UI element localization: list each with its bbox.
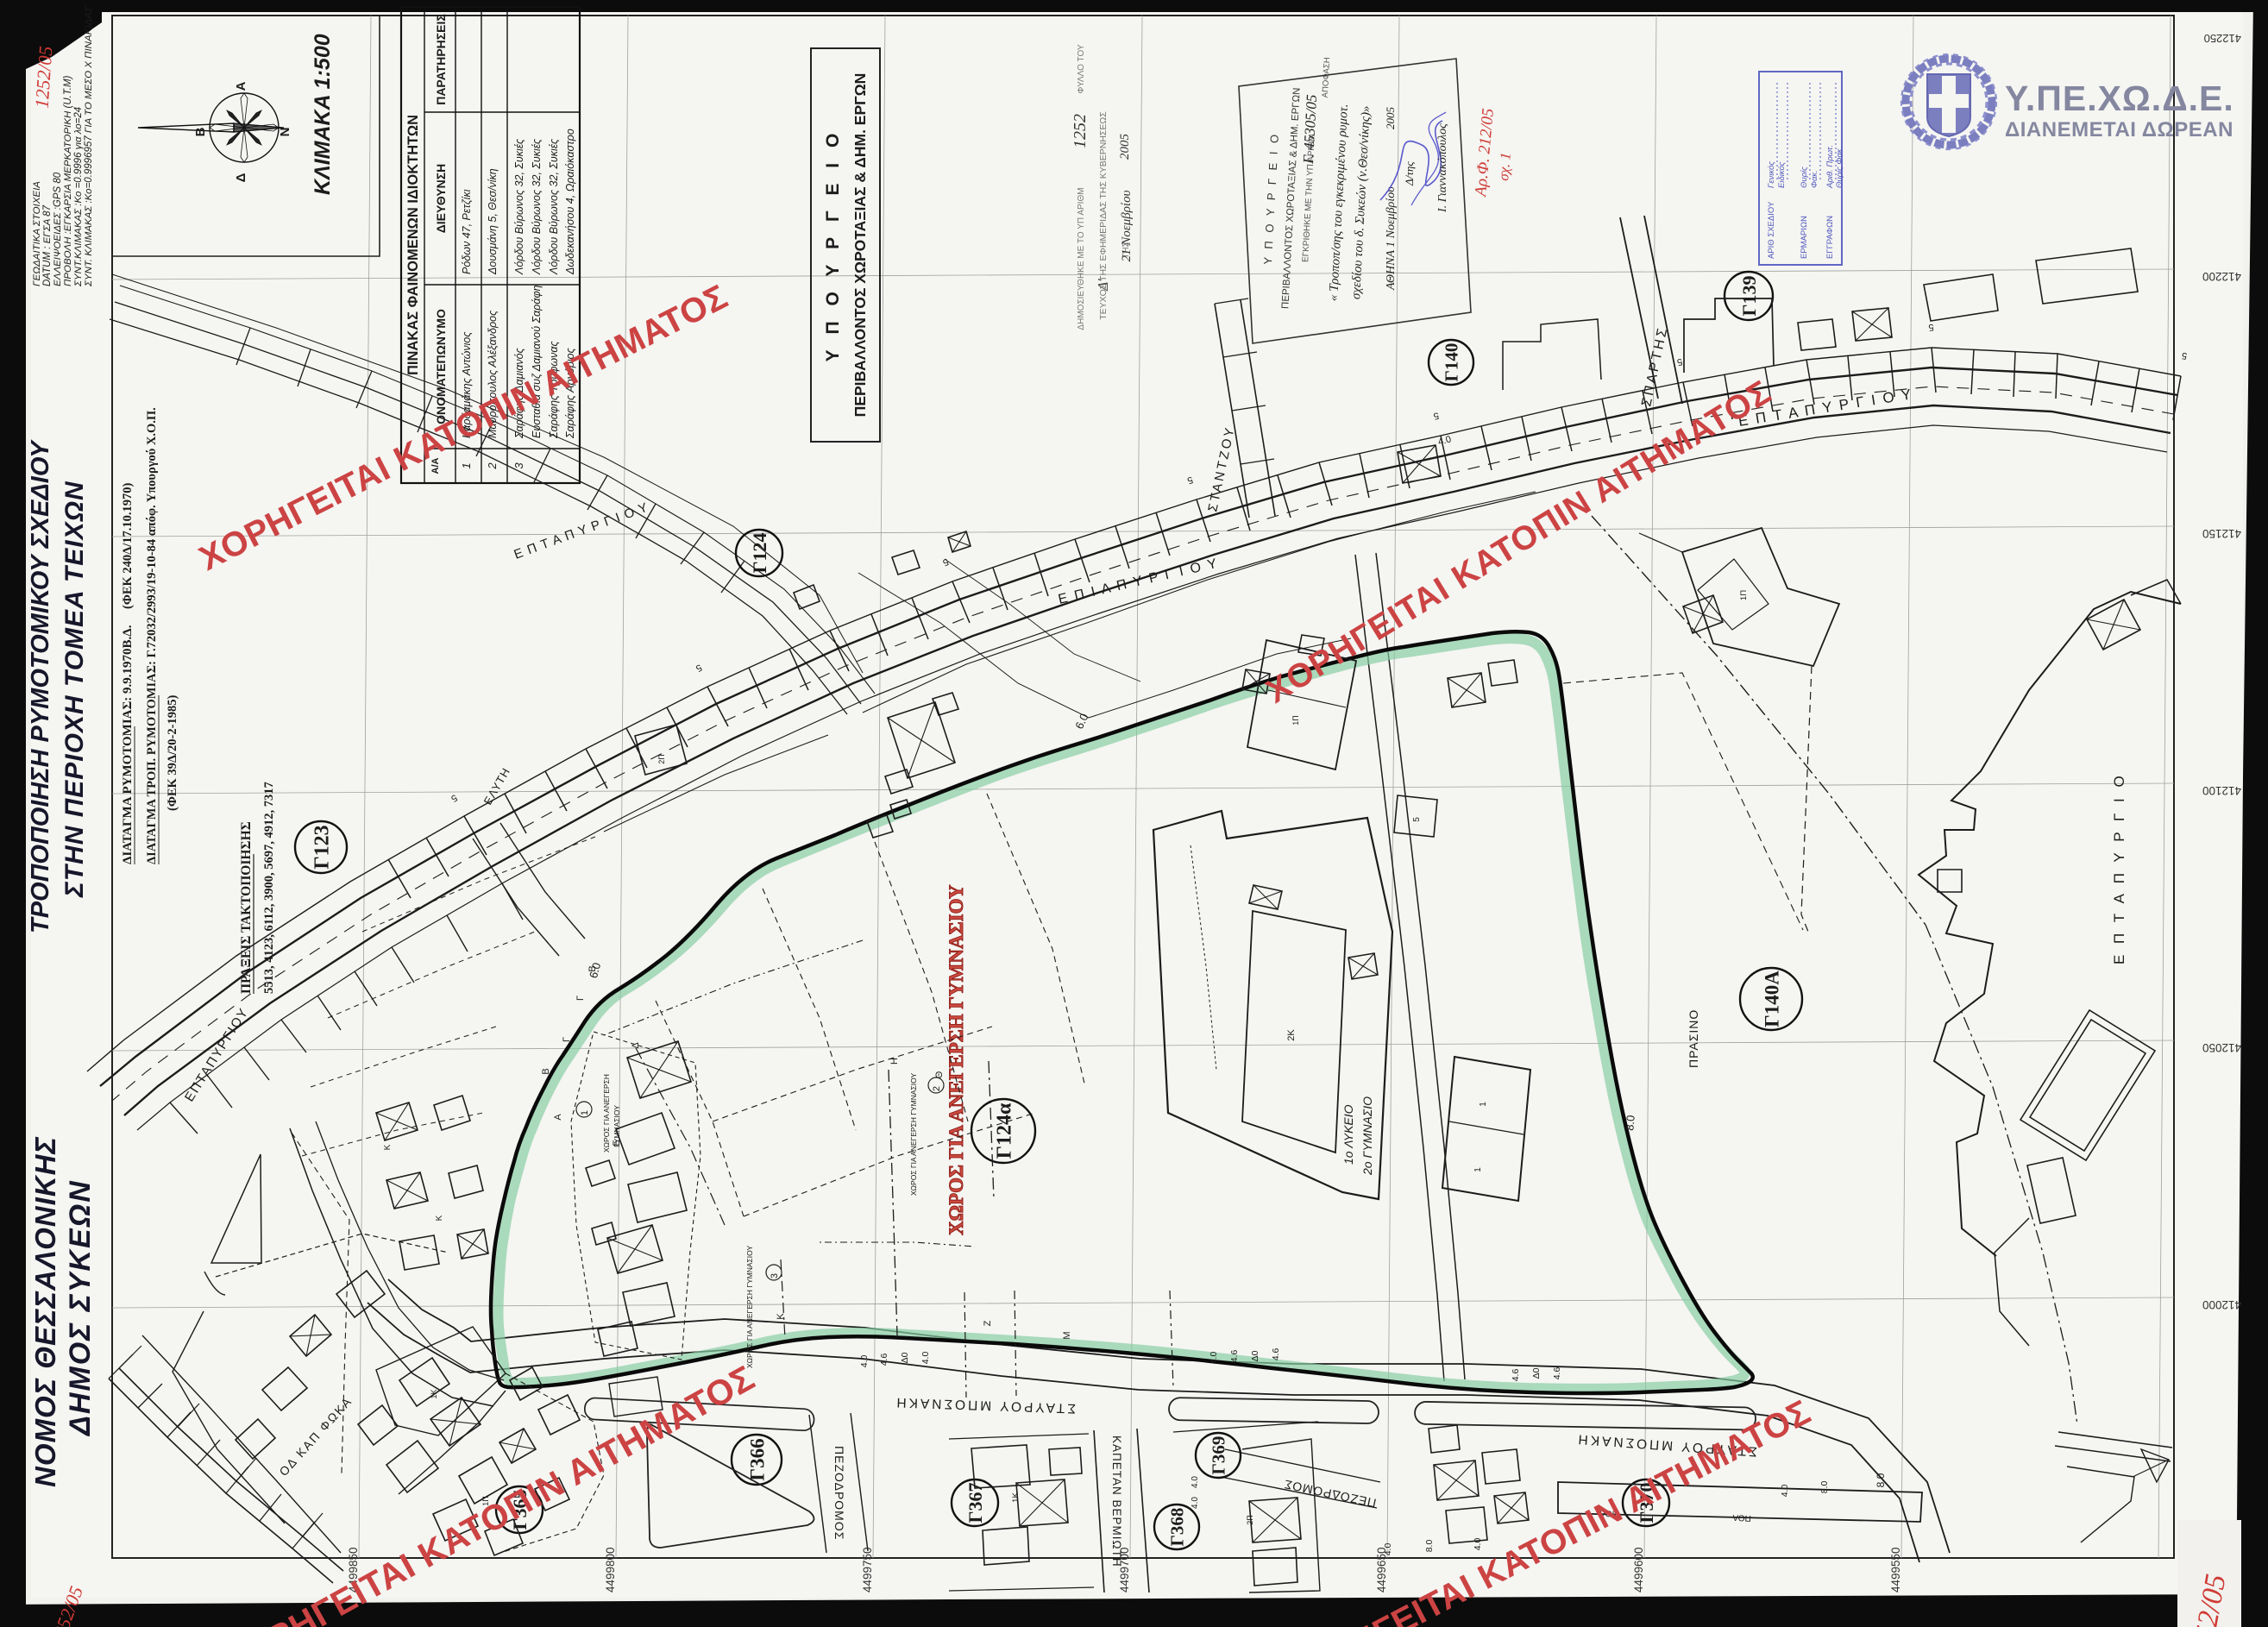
- svg-text:ΤΡΟΠΟΠΟΙΗΣΗ ΡΥΜΟΤΟΜΙΚΟΥ ΣΧΕΔ: ΤΡΟΠΟΠΟΙΗΣΗ ΡΥΜΟΤΟΜΙΚΟΥ ΣΧΕΔΙΟΥ: [27, 439, 54, 933]
- svg-text:Λόρδου Βύρωνος 32, Συκιές: Λόρδου Βύρωνος 32, Συκιές: [513, 138, 525, 275]
- svg-text:ΑΡΙΘ ΣΧΕΔΙΟΥ: ΑΡΙΘ ΣΧΕΔΙΟΥ: [1767, 201, 1776, 259]
- svg-text:ΠΡΟΒΟΛΗ :ΕΓΚΑΡΣΙΑ ΜΕΡ: ΠΡΟΒΟΛΗ :ΕΓΚΑΡΣΙΑ ΜΕΡΚΑΤΟΡΙΚΗ (U.T.M): [63, 75, 73, 286]
- svg-text:4.6: 4.6: [1229, 1350, 1240, 1363]
- svg-text:σχ. 1: σχ. 1: [1495, 152, 1514, 181]
- svg-text:ΧΩΡΟΣ ΓΙΑ ΑΝΕΓΕΡΣΗ ΓΥΜΝΑΣΙΟΥ: ΧΩΡΟΣ ΓΙΑ ΑΝΕΓΕΡΣΗ ΓΥΜΝΑΣΙΟΥ: [946, 884, 967, 1235]
- svg-text:Δ0: Δ0: [900, 1352, 910, 1363]
- svg-text:Μ: Μ: [1062, 1331, 1072, 1339]
- svg-text:4.0: 4.0: [920, 1352, 931, 1365]
- svg-text:3: 3: [512, 462, 525, 469]
- svg-text:1: 1: [1473, 1167, 1483, 1172]
- svg-text:ΠΕΡΙΒΑΛΛΟΝΤΟΣ ΧΩΡΟΤΑΞΙΑΣ & ΔΗΜ: ΠΕΡΙΒΑΛΛΟΝΤΟΣ ΧΩΡΟΤΑΞΙΑΣ & ΔΗΜ. ΕΡΓΩΝ: [851, 73, 869, 418]
- svg-text:Δ0: Δ0: [1531, 1367, 1542, 1379]
- svg-text:Ζ: Ζ: [983, 1320, 993, 1326]
- svg-text:Δωδεκανήσου 4, Ωραιόκαστρο: Δωδεκανήσου 4, Ωραιόκαστρο: [564, 129, 576, 275]
- svg-text:4.6: 4.6: [879, 1354, 889, 1366]
- svg-text:1: 1: [1479, 1102, 1488, 1107]
- svg-text:Λόρδου Βύρωνος 32, Συκιές: Λόρδου Βύρωνος 32, Συκιές: [548, 138, 560, 275]
- svg-text:1: 1: [460, 462, 473, 468]
- svg-text:Β: Β: [193, 127, 208, 136]
- svg-text:(ΦΕΚ 240Δ/17.10.1970): (ΦΕΚ 240Δ/17.10.1970): [121, 482, 135, 609]
- svg-text:2Π: 2Π: [1246, 1515, 1254, 1525]
- svg-text:ΕΓΓΡΑΦΩΝ: ΕΓΓΡΑΦΩΝ: [1825, 216, 1835, 259]
- svg-text:4.0: 4.0: [1473, 1538, 1483, 1551]
- svg-text:Κ: Κ: [383, 1144, 393, 1150]
- svg-text:2Π: 2Π: [657, 754, 666, 764]
- svg-text:ΠΟΛ: ΠΟΛ: [1732, 1512, 1751, 1523]
- svg-text:1: 1: [580, 1110, 590, 1115]
- svg-text:Υ.ΠΕ.ΧΩ.Δ.Ε.: Υ.ΠΕ.ΧΩ.Δ.Ε.: [2005, 79, 2234, 118]
- svg-text:2: 2: [486, 462, 499, 470]
- svg-text:Γ123: Γ123: [311, 825, 334, 869]
- svg-text:1Κ: 1Κ: [430, 1389, 438, 1398]
- svg-text:Γ366: Γ366: [746, 1438, 768, 1480]
- svg-text:1Π: 1Π: [1291, 715, 1300, 726]
- svg-text:Ειδικός: Ειδικός: [1777, 161, 1787, 188]
- svg-text:Β: Β: [541, 1068, 551, 1074]
- svg-text:5: 5: [1928, 322, 1934, 333]
- svg-text:ΔΙΑΤΑΓΜΑ ΡΥΜΟΤΟΜΙΑΣ: 9.9.1970Β: ΔΙΑΤΑΓΜΑ ΡΥΜΟΤΟΜΙΑΣ: 9.9.1970Β.Δ.: [121, 625, 135, 864]
- svg-text:5: 5: [1412, 817, 1422, 822]
- svg-text:4499800: 4499800: [604, 1547, 617, 1592]
- svg-text:4.0: 4.0: [859, 1355, 870, 1368]
- svg-text:Α: Α: [234, 81, 248, 91]
- svg-text:412200: 412200: [2202, 270, 2241, 283]
- svg-text:ΔΗΜΟΣ ΣΥΚΕΩΝ: ΔΗΜΟΣ ΣΥΚΕΩΝ: [64, 1179, 97, 1437]
- svg-text:Ν: Ν: [278, 128, 292, 137]
- svg-text:Δ/της: Δ/της: [1403, 161, 1416, 186]
- svg-text:ΔΙΑΝΕΜΕΤΑΙ ΔΩΡΕΑΝ: ΔΙΑΝΕΜΕΤΑΙ ΔΩΡΕΑΝ: [2005, 118, 2233, 141]
- svg-text:Γ369: Γ369: [1209, 1436, 1229, 1475]
- svg-text:8.0: 8.0: [1875, 1473, 1887, 1487]
- svg-text:ΠΑΡΑΤΗΡΗΣΕΙΣ: ΠΑΡΑΤΗΡΗΣΕΙΣ: [434, 14, 448, 105]
- svg-text:Κ: Κ: [776, 1313, 786, 1320]
- svg-text:ΕΛΛΕΙΨΟΕΙΔΕΣ :GPS 80: ΕΛΛΕΙΨΟΕΙΔΕΣ :GPS 80: [53, 172, 63, 286]
- svg-text:1Κ: 1Κ: [1011, 1492, 1021, 1503]
- svg-text:Θυρίς: Θυρίς: [1800, 166, 1809, 188]
- svg-text:8.0: 8.0: [1424, 1540, 1435, 1553]
- svg-text:ΠΙΝΑΚΑΣ ΦΑΙΝΟΜΕΝΩΝ ΙΔΙΟΚΤΗΤΩ: ΠΙΝΑΚΑΣ ΦΑΙΝΟΜΕΝΩΝ ΙΔΙΟΚΤΗΤΩΝ: [405, 115, 421, 375]
- svg-text:ΟΝΟΜΑΤΕΠΩΝΥΜΟ: ΟΝΟΜΑΤΕΠΩΝΥΜΟ: [434, 309, 448, 424]
- svg-text:DATUM : ΕΓΣΑ 87: DATUM : ΕΓΣΑ 87: [42, 204, 53, 286]
- svg-text:Φακ.: Φακ.: [1810, 170, 1819, 188]
- svg-text:4.6: 4.6: [1511, 1369, 1521, 1382]
- svg-text:ΠΕΖΟΔΡΟΜΟΣ: ΠΕΖΟΔΡΟΜΟΣ: [832, 1446, 846, 1540]
- svg-text:ΕΡΜΑΡΙΩΝ: ΕΡΜΑΡΙΩΝ: [1800, 216, 1809, 259]
- svg-text:ΠΡΑΣΙΝΟ: ΠΡΑΣΙΝΟ: [1687, 1009, 1700, 1068]
- svg-text:ΧΩΡΟΣ ΓΙΑ ΑΝΕΓΕΡΣΗ ΓΥΜΝΑΣΙΟΥ: ΧΩΡΟΣ ΓΙΑ ΑΝΕΓΕΡΣΗ ΓΥΜΝΑΣΙΟΥ: [745, 1245, 754, 1368]
- svg-text:Γ140Α: Γ140Α: [1761, 971, 1782, 1027]
- svg-text:4.0: 4.0: [1191, 1476, 1200, 1488]
- svg-text:Β: Β: [587, 965, 598, 971]
- svg-text:Θ: Θ: [934, 1071, 945, 1078]
- svg-text:ΔΙΑΤΑΓΜΑ ΤΡΟΠ. ΡΥΜΟΤΟΜΙΑΣ: Γ.: ΔΙΑΤΑΓΜΑ ΤΡΟΠ. ΡΥΜΟΤΟΜΙΑΣ: Γ.72032/2993/…: [145, 407, 159, 864]
- svg-text:412150: 412150: [2202, 527, 2241, 540]
- svg-text:ΧΩΡΟΣ ΓΙΑ ΑΝΕΓΕΡΣΗ: ΧΩΡΟΣ ΓΙΑ ΑΝΕΓΕΡΣΗ: [602, 1074, 611, 1153]
- svg-text:4.6: 4.6: [1271, 1348, 1281, 1361]
- svg-text:Υ Π Ο Υ Ρ Γ Ε Ι Ο: Υ Π Ο Υ Ρ Γ Ε Ι Ο: [823, 129, 843, 362]
- svg-text:2Κ: 2Κ: [1286, 1029, 1297, 1041]
- svg-text:4.0: 4.0: [1191, 1497, 1200, 1509]
- svg-text:ΤΕΥΧΟΣ ΤΗΣ ΕΦΗΜΕΡΙΔΑΣ ΤΗΣ ΚΥΒΕ: ΤΕΥΧΟΣ ΤΗΣ ΕΦΗΜΕΡΙΔΑΣ ΤΗΣ ΚΥΒΕΡΝΗΣΕΩΣ: [1098, 111, 1109, 320]
- svg-text:Γ368: Γ368: [1167, 1508, 1188, 1547]
- svg-text:Δ0: Δ0: [1250, 1350, 1260, 1361]
- svg-text:(ΦΕΚ 39Δ/20-2-1985): (ΦΕΚ 39Δ/20-2-1985): [166, 695, 179, 811]
- svg-text:Ρόδων 47, Ρετζίκι: Ρόδων 47, Ρετζίκι: [461, 189, 473, 274]
- svg-text:412050: 412050: [2202, 1041, 2241, 1054]
- svg-text:4499600: 4499600: [1632, 1547, 1645, 1592]
- svg-text:8.0: 8.0: [1623, 1115, 1637, 1131]
- svg-text:ΣΤΗΝ ΠΕΡΙΟΧΗ ΤΟΜΕΑ ΤΕΙΧΩΝ: ΣΤΗΝ ΠΕΡΙΟΧΗ ΤΟΜΕΑ ΤΕΙΧΩΝ: [60, 481, 89, 898]
- svg-text:ΧΩΡΟΣ ΓΙΑ ΑΝΕΓΕΡΣΗ ΓΥΜΝΑΣΙΟΥ: ΧΩΡΟΣ ΓΙΑ ΑΝΕΓΕΡΣΗ ΓΥΜΝΑΣΙΟΥ: [909, 1072, 918, 1196]
- svg-text:Δουσμάνη 5, Θεσ/νίκη: Δουσμάνη 5, Θεσ/νίκη: [487, 168, 499, 275]
- svg-text:Ε: Ε: [612, 1140, 622, 1146]
- svg-text:Κ: Κ: [435, 1215, 444, 1221]
- svg-text:Η: Η: [889, 1058, 900, 1065]
- svg-text:4.0: 4.0: [1780, 1485, 1790, 1498]
- svg-text:ΠΡΑΞΕΙΣ ΤΑΚΤΟΠΟΙΗΣΗΣ: ΠΡΑΞΕΙΣ ΤΑΚΤΟΠΟΙΗΣΗΣ: [239, 821, 254, 994]
- svg-text:412100: 412100: [2202, 784, 2241, 797]
- svg-text:Γ124α: Γ124α: [994, 1102, 1016, 1159]
- svg-text:2005: 2005: [1384, 107, 1397, 130]
- svg-text:Γ: Γ: [562, 1037, 572, 1042]
- svg-text:4.0: 4.0: [1383, 1543, 1393, 1556]
- svg-text:Γενικός: Γενικός: [1767, 161, 1776, 188]
- svg-text:Θυρίς Φακ.: Θυρίς Φακ.: [1835, 147, 1844, 188]
- svg-text:ΔΙΕΥΘΥΝΣΗ: ΔΙΕΥΘΥΝΣΗ: [434, 164, 448, 234]
- svg-text:Ι. Γιαννακόπουλος: Ι. Γιαννακόπουλος: [1436, 123, 1449, 213]
- svg-text:1252/05: 1252/05: [31, 46, 57, 110]
- svg-text:ΣΥΝΤ.ΚΛΙΜΑΚΑΣ :Κο =0.9996 γι: ΣΥΝΤ.ΚΛΙΜΑΚΑΣ :Κο =0.9996 για λο=24: [73, 107, 84, 287]
- svg-text:4499750: 4499750: [861, 1547, 874, 1592]
- svg-text:ΑΘΗΝΑ 1 Νοεμβρίου: ΑΘΗΝΑ 1 Νοεμβρίου: [1385, 186, 1398, 291]
- svg-text:ΣΥΝΤ. ΚΛΙΜΑΚΑΣ :Κο=0.9996957: ΣΥΝΤ. ΚΛΙΜΑΚΑΣ :Κο=0.9996957 ΓΙΑ ΤΟ ΜΕΣΟ…: [84, 5, 94, 287]
- svg-text:Γ124: Γ124: [749, 533, 770, 574]
- svg-text:21 Νοεμβρίου: 21 Νοεμβρίου: [1120, 190, 1134, 261]
- svg-text:Αριθ. Πρωτ.: Αριθ. Πρωτ.: [1825, 145, 1835, 189]
- svg-text:4499550: 4499550: [1889, 1547, 1902, 1592]
- svg-text:Γ: Γ: [575, 996, 586, 1001]
- svg-text:4.0: 4.0: [1209, 1352, 1219, 1365]
- svg-text:ΚΛΙΜΑΚΑ 1:500: ΚΛΙΜΑΚΑ 1:500: [311, 34, 335, 195]
- svg-text:Γ140: Γ140: [1442, 343, 1462, 382]
- svg-text:1252: 1252: [1071, 114, 1090, 148]
- svg-text:Δ: Δ: [631, 1042, 641, 1049]
- svg-text:ΝΟΜΟΣ ΘΕΣΣΑΛΟΝΙΚΗΣ: ΝΟΜΟΣ ΘΕΣΣΑΛΟΝΙΚΗΣ: [29, 1136, 61, 1487]
- svg-text:ΓΕΩΔΑΙΤΙΚΑ ΣΤΟΙΧΕΙΑ: ΓΕΩΔΑΙΤΙΚΑ ΣΤΟΙΧΕΙΑ: [32, 181, 42, 286]
- svg-text:Δ: Δ: [234, 173, 248, 182]
- svg-text:ΔΗΜΟΣΙΕΥΘΗΚΕ ΜΕ ΤΟ ΥΠ ΑΡΙΘΜ: ΔΗΜΟΣΙΕΥΘΗΚΕ ΜΕ ΤΟ ΥΠ ΑΡΙΘΜ: [1077, 187, 1086, 330]
- svg-text:412000: 412000: [2202, 1298, 2241, 1311]
- svg-text:2005: 2005: [1118, 134, 1132, 160]
- svg-text:Λόρδου Βύρωνος 32, Συκιές: Λόρδου Βύρωνος 32, Συκιές: [531, 138, 543, 275]
- svg-text:3: 3: [770, 1273, 780, 1278]
- svg-text:Ε Π Τ Α Π Υ Ρ Γ Ι Ο: Ε Π Τ Α Π Υ Ρ Γ Ι Ο: [2111, 772, 2127, 964]
- svg-text:2ο ΓΥΜΝΑΣΙΟ: 2ο ΓΥΜΝΑΣΙΟ: [1360, 1096, 1374, 1176]
- svg-text:8.0: 8.0: [1819, 1481, 1830, 1494]
- svg-text:4.6: 4.6: [1552, 1367, 1562, 1380]
- svg-text:Γ139: Γ139: [1738, 276, 1760, 317]
- svg-text:ΚΑΠΕΤΑΝ ΒΕΡΜΙΩΤΗ: ΚΑΠΕΤΑΝ ΒΕΡΜΙΩΤΗ: [1110, 1435, 1123, 1567]
- svg-text:Α: Α: [553, 1114, 563, 1121]
- svg-text:Ευσταθία συζ Δαμιανού Σαράφη: Ευσταθία συζ Δαμιανού Σαράφη: [531, 285, 543, 438]
- svg-text:1ο ΛΥΚΕΙΟ: 1ο ΛΥΚΕΙΟ: [1341, 1104, 1355, 1165]
- svg-text:2: 2: [932, 1086, 942, 1091]
- svg-text:1Π: 1Π: [1739, 590, 1749, 600]
- svg-text:ΦΥΛΛΟ ΤΟΥ: ΦΥΛΛΟ ΤΟΥ: [1077, 44, 1086, 93]
- svg-text:412250: 412250: [2204, 32, 2241, 45]
